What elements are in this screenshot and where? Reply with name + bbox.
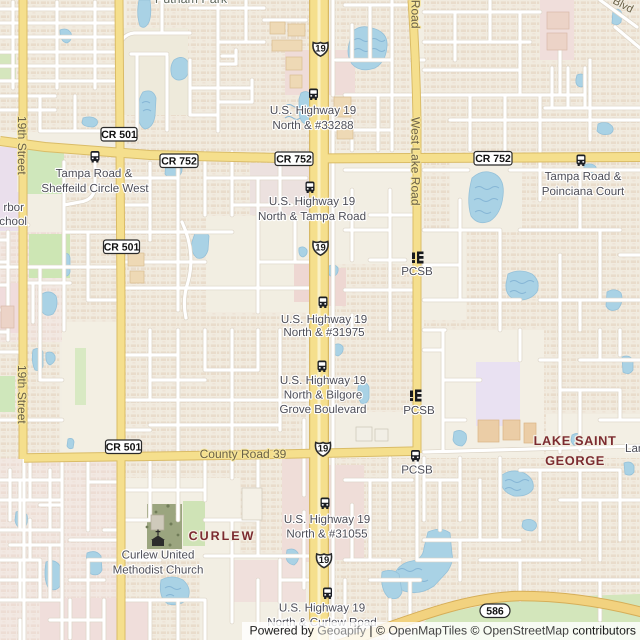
svg-text:U.S. Highway 19: U.S. Highway 19 <box>281 313 367 326</box>
svg-text:CURLEW: CURLEW <box>189 529 256 543</box>
svg-text:U.S. Highway 19: U.S. Highway 19 <box>284 513 370 526</box>
svg-text:19th Street: 19th Street <box>15 365 29 424</box>
svg-text:North & #31055: North & #31055 <box>286 528 367 541</box>
svg-text:PCSB: PCSB <box>403 404 435 417</box>
svg-text:PCSB: PCSB <box>401 265 433 278</box>
svg-text:Poinciana Court: Poinciana Court <box>542 185 625 198</box>
svg-text:CR 752: CR 752 <box>161 156 197 168</box>
svg-text:Curlew United: Curlew United <box>122 549 195 562</box>
svg-text:PCSB: PCSB <box>401 464 433 477</box>
svg-text:West Lake Road: West Lake Road <box>409 117 423 206</box>
svg-text:Grove Boulevard: Grove Boulevard <box>280 403 367 416</box>
svg-text:CR 501: CR 501 <box>106 442 142 454</box>
svg-text:CR 752: CR 752 <box>475 153 511 165</box>
svg-text:19: 19 <box>315 43 326 54</box>
svg-text:CR 501: CR 501 <box>104 242 140 254</box>
svg-text:North & #33288: North & #33288 <box>272 119 353 132</box>
svg-text:U.S. Highway 19: U.S. Highway 19 <box>270 104 356 117</box>
svg-text:North & Bilgore: North & Bilgore <box>284 389 363 402</box>
svg-text:Powered by Geoapify | © OpenMa: Powered by Geoapify | © OpenMapTiles © O… <box>249 624 636 638</box>
svg-text:CR 752: CR 752 <box>276 154 312 166</box>
svg-text:19: 19 <box>318 443 329 454</box>
svg-text:school: school <box>0 215 27 228</box>
svg-text:U.S. Highway 19: U.S. Highway 19 <box>279 602 365 615</box>
svg-text:Sheffeild Circle West: Sheffeild Circle West <box>41 182 149 195</box>
svg-text:GEORGE: GEORGE <box>545 453 605 468</box>
svg-text:Tampa Road &: Tampa Road & <box>56 167 133 180</box>
svg-text:North & Tampa Road: North & Tampa Road <box>258 210 366 223</box>
svg-text:Lan: Lan <box>625 442 640 455</box>
svg-text:U.S. Highway 19: U.S. Highway 19 <box>269 195 355 208</box>
svg-text:North & #31975: North & #31975 <box>283 326 364 339</box>
svg-text:Methodist Church: Methodist Church <box>113 564 204 577</box>
svg-text:19: 19 <box>319 555 330 566</box>
svg-text:rbor: rbor <box>3 201 24 214</box>
svg-text:Putnam Park: Putnam Park <box>155 0 228 6</box>
svg-text:19th Street: 19th Street <box>15 116 29 175</box>
svg-text:19: 19 <box>315 242 326 253</box>
svg-text:586: 586 <box>486 606 504 618</box>
svg-text:West Lake Road: West Lake Road <box>409 0 423 29</box>
svg-text:County Road 39: County Road 39 <box>200 447 287 461</box>
svg-text:Tampa Road &: Tampa Road & <box>545 170 622 183</box>
svg-text:U.S. Highway 19: U.S. Highway 19 <box>280 374 366 387</box>
svg-text:LAKE SAINT: LAKE SAINT <box>534 433 617 448</box>
svg-text:CR 501: CR 501 <box>101 129 137 141</box>
